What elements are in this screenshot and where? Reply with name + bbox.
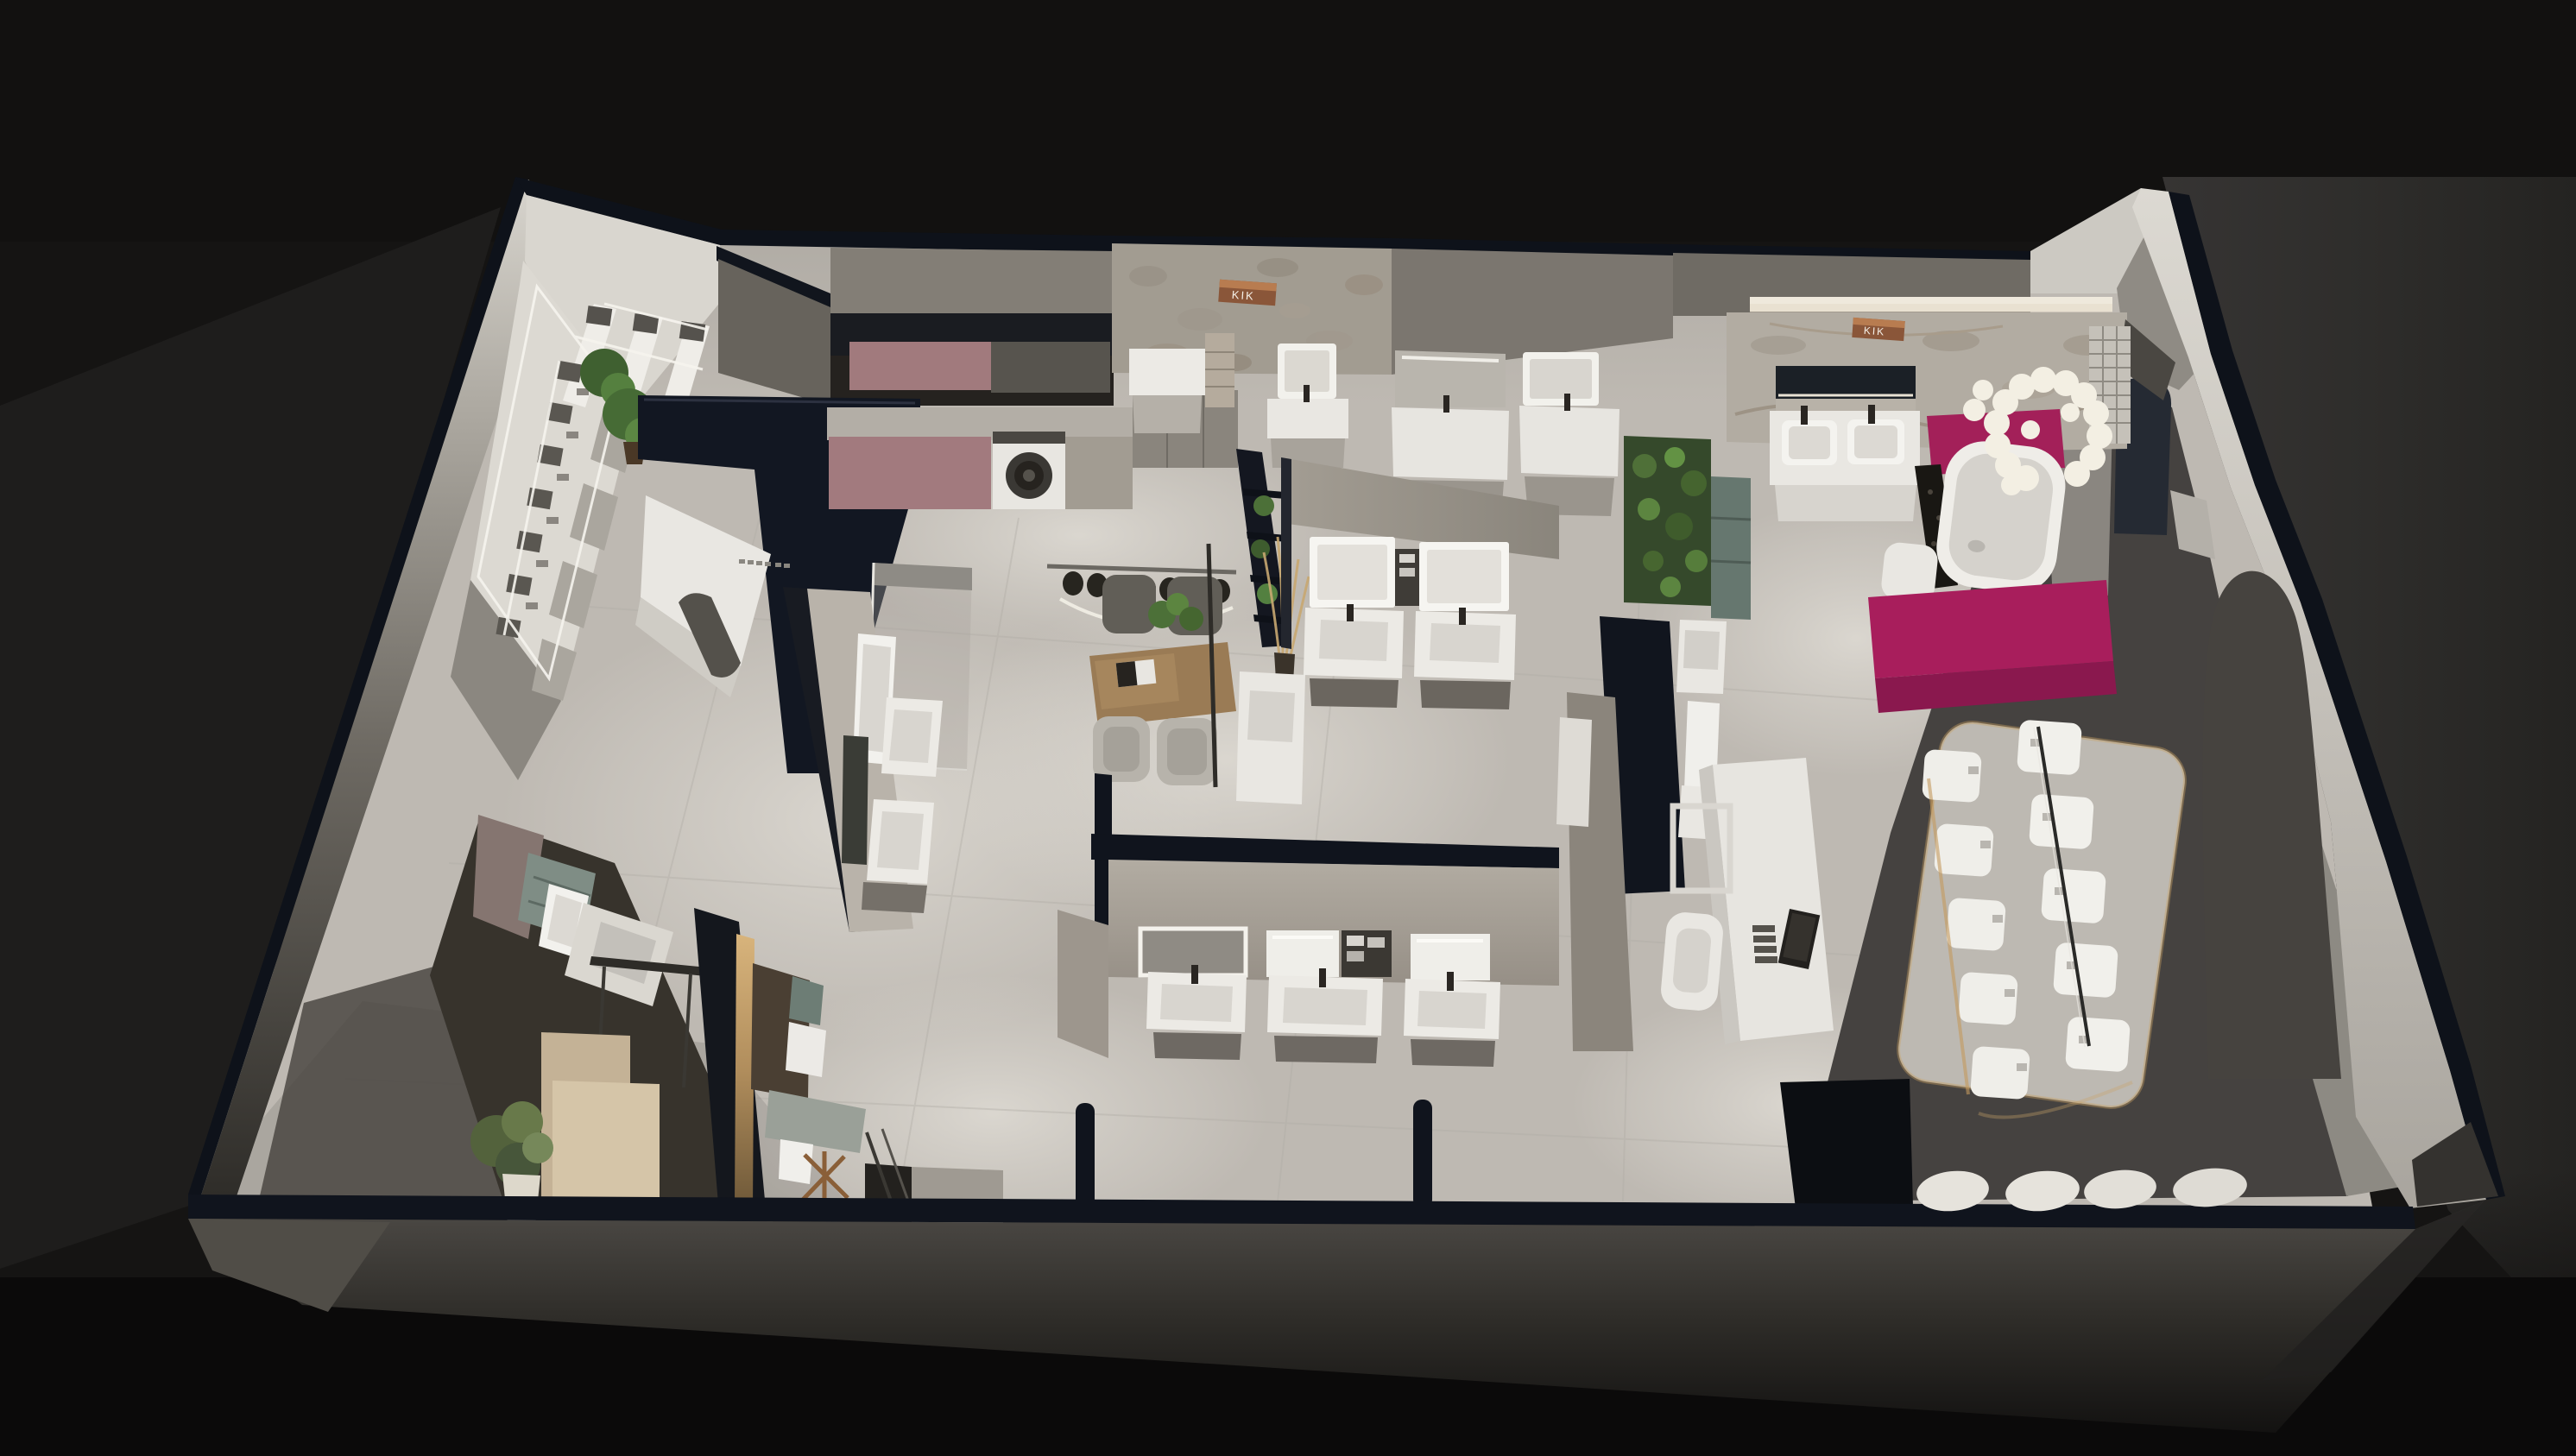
svg-text:KIK: KIK (1231, 288, 1255, 303)
svg-text:KIK: KIK (1863, 325, 1885, 338)
